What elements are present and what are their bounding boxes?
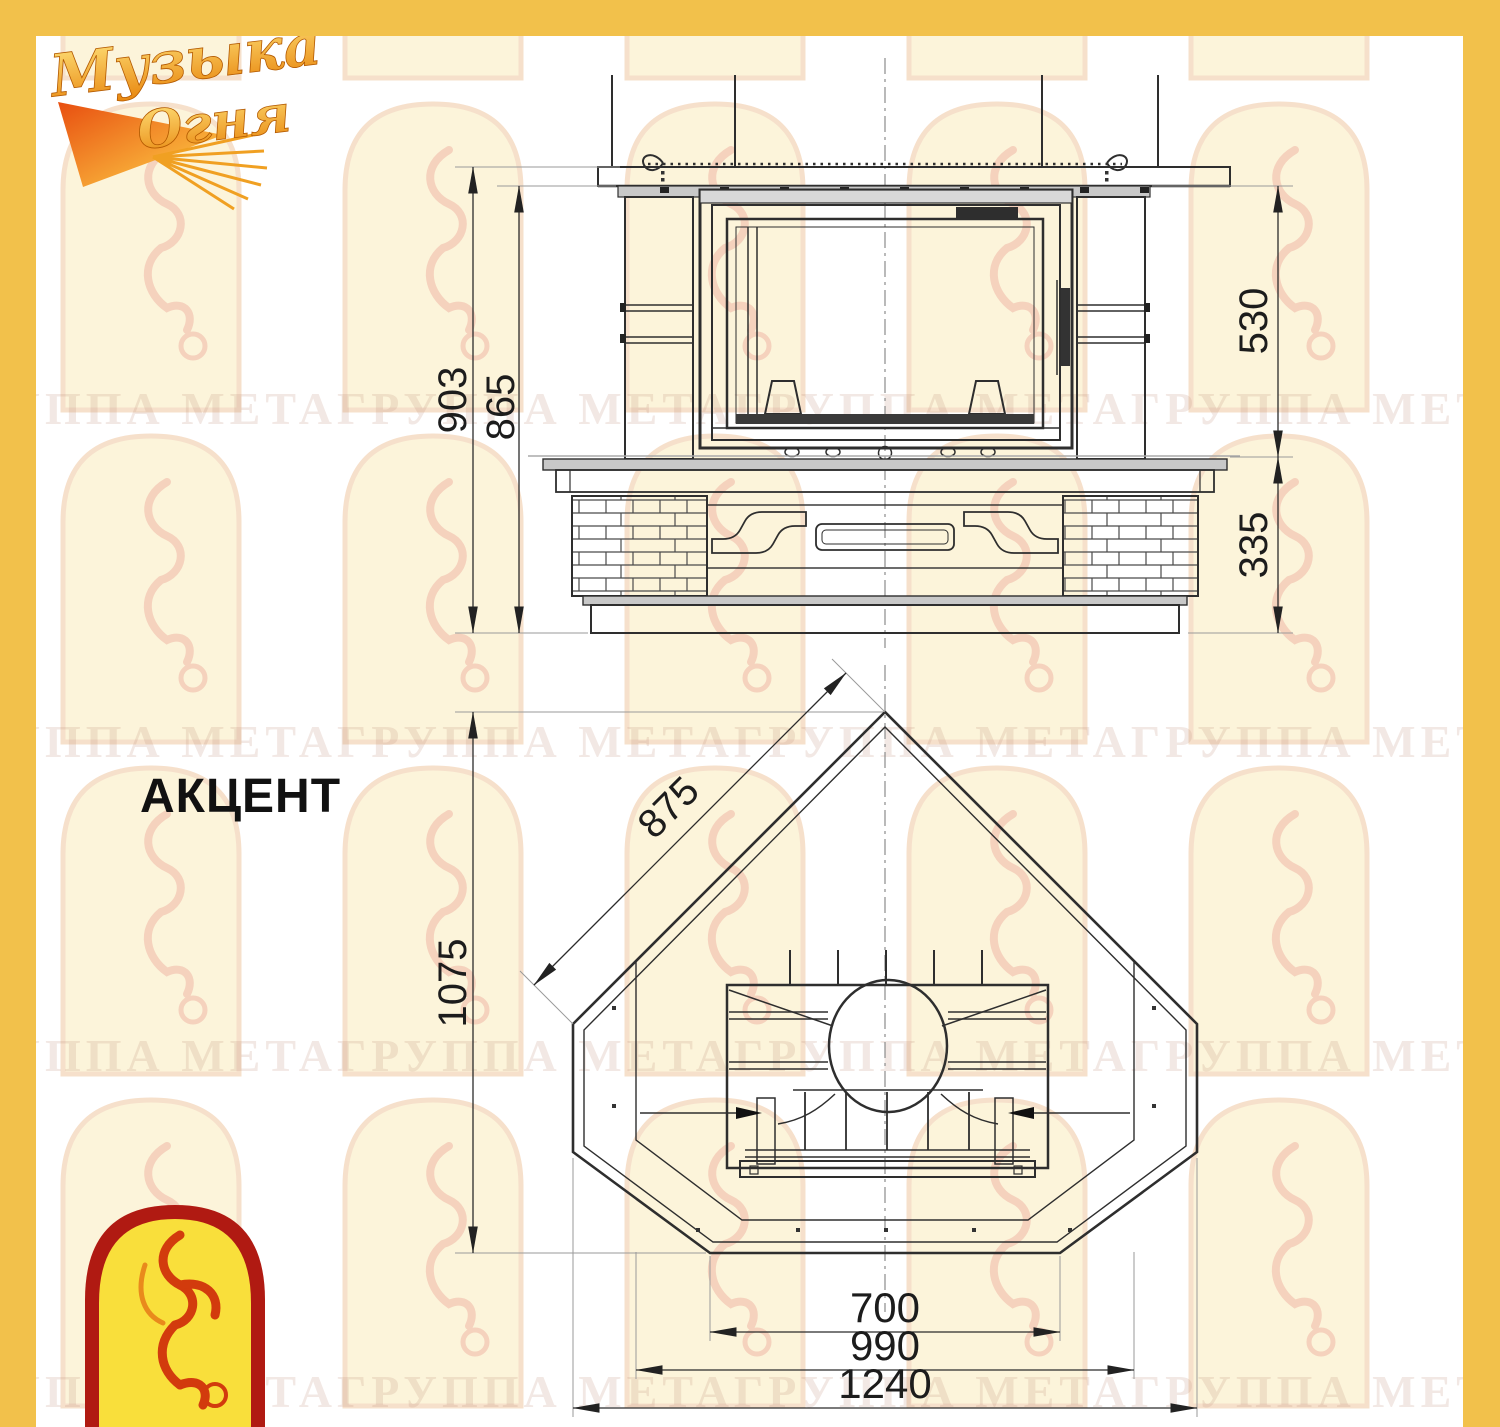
dim-label-1240: 1240 [838,1360,931,1407]
dim-label-1075: 1075 [431,939,475,1028]
bottom-brand-logo [85,1205,265,1427]
watermark-text-row: ГРУППА МЕТАГРУППА МЕТАГРУППА МЕТАГРУППА … [0,1030,1500,1081]
firebox-sill [736,414,1034,424]
brand-plate [956,207,1018,218]
frame-bar-right [1463,0,1500,1427]
dim-label-530: 530 [1232,288,1276,355]
brick-pedestal-left [572,496,707,596]
dim-label-903: 903 [431,367,475,434]
watermark-text-row: ГРУППА МЕТАГРУППА МЕТАГРУППА МЕТАГРУППА … [0,716,1500,767]
technical-drawing-svg: ГРУППА МЕТАГРУППА МЕТАГРУППА МЕТАГРУППА … [0,0,1500,1427]
frame-bar-left [0,0,36,1427]
brick-pedestal-right [1063,496,1198,596]
dim-label-865: 865 [479,374,523,441]
dim-label-335: 335 [1232,512,1276,579]
drawing-sheet: ГРУППА МЕТАГРУППА МЕТАГРУППА МЕТАГРУППА … [0,0,1500,1427]
model-title: АКЦЕНТ [140,770,341,823]
frame-bar-top [0,0,1500,36]
watermark-text-row: ГРУППА МЕТАГРУППА МЕТАГРУППА МЕТАГРУППА … [0,383,1500,434]
door-handle [1061,288,1070,366]
